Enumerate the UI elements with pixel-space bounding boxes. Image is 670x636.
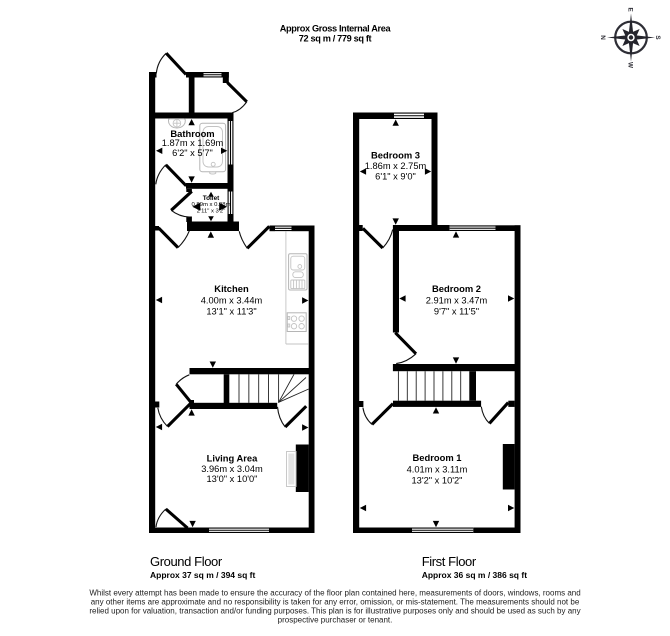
svg-text:Whilst every attempt has been: Whilst every attempt has been made to en… [89, 589, 580, 598]
svg-text:4.01m x 3.11m: 4.01m x 3.11m [407, 465, 468, 475]
svg-text:Bedroom 1: Bedroom 1 [413, 452, 462, 463]
svg-text:6'2" x 5'7": 6'2" x 5'7" [172, 148, 213, 158]
svg-text:First Floor: First Floor [422, 554, 477, 569]
svg-text:2.91m x 3.47m: 2.91m x 3.47m [426, 296, 488, 306]
svg-text:Bedroom 2: Bedroom 2 [432, 283, 481, 294]
svg-text:Approx Gross Internal Area: Approx Gross Internal Area [280, 24, 392, 34]
svg-text:Approx 37 sq m / 394 sq ft: Approx 37 sq m / 394 sq ft [150, 570, 256, 580]
svg-text:3.96m x 3.04m: 3.96m x 3.04m [201, 464, 263, 474]
svg-text:N: N [599, 35, 606, 40]
svg-text:13'0" x 10'0": 13'0" x 10'0" [207, 474, 258, 484]
svg-text:Approx 36 sq m / 386 sq ft: Approx 36 sq m / 386 sq ft [422, 570, 528, 580]
svg-text:1.87m x 1.69m: 1.87m x 1.69m [162, 138, 224, 148]
svg-text:W: W [627, 62, 634, 68]
svg-text:Bedroom 3: Bedroom 3 [371, 150, 420, 161]
svg-text:9'7" x 11'5": 9'7" x 11'5" [434, 307, 479, 317]
svg-text:72 sq m / 779 sq ft: 72 sq m / 779 sq ft [299, 33, 372, 43]
svg-text:S: S [654, 35, 661, 39]
svg-text:Kitchen: Kitchen [214, 283, 249, 294]
svg-text:relied upon for valuation, tra: relied upon for valuation, transaction a… [89, 607, 580, 616]
svg-text:13'2" x 10'2": 13'2" x 10'2" [412, 476, 463, 486]
svg-text:13'1" x 11'3": 13'1" x 11'3" [206, 307, 256, 317]
svg-text:6'1" x 9'0": 6'1" x 9'0" [375, 172, 416, 182]
svg-text:1.86m x 2.75m: 1.86m x 2.75m [365, 161, 427, 171]
svg-text:prospective purchaser or tenan: prospective purchaser or tenant. [278, 616, 393, 625]
svg-text:4.00m x 3.44m: 4.00m x 3.44m [201, 296, 263, 306]
svg-text:E: E [627, 7, 634, 11]
svg-text:any other items are approximat: any other items are approximate and no r… [91, 598, 580, 607]
svg-text:Living Area: Living Area [207, 453, 258, 464]
svg-text:Ground Floor: Ground Floor [150, 554, 223, 569]
